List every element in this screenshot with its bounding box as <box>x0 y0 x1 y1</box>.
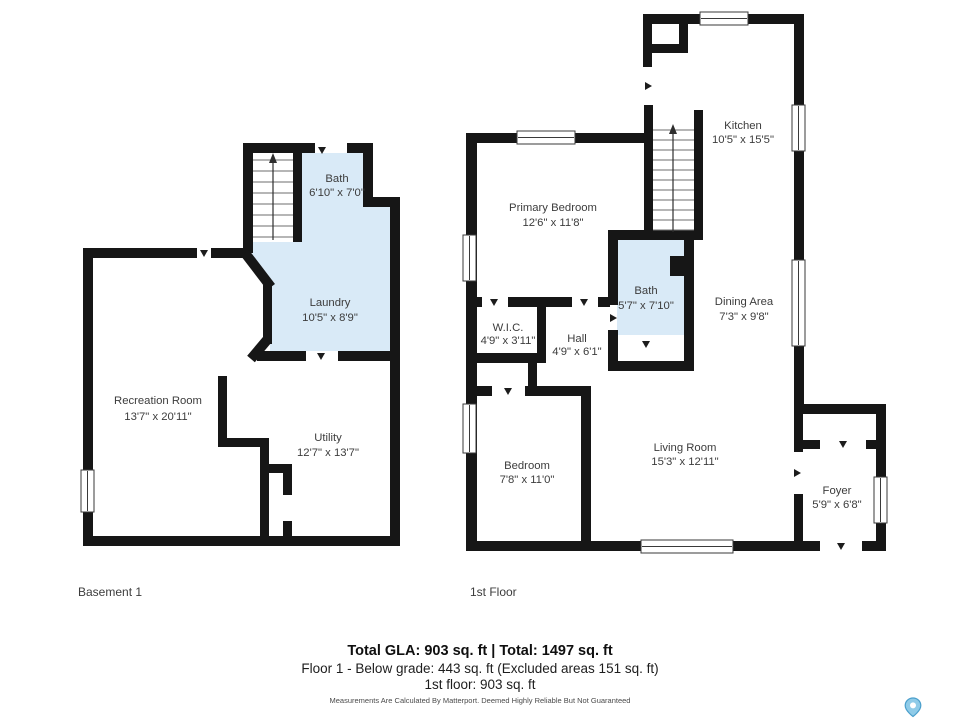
room-label-kitchen: Kitchen 10'5" x 15'5" <box>712 120 774 146</box>
first-floor-plan: Primary Bedroom 12'6" x 11'8" Kitchen 10… <box>463 12 887 599</box>
room-name: Primary Bedroom <box>509 202 597 214</box>
window <box>463 235 476 281</box>
room-name: Recreation Room <box>114 395 202 407</box>
room-label-wic: W.I.C. 4'9" x 3'11" <box>481 322 536 347</box>
room-label-hall: Hall 4'9" x 6'1" <box>552 333 601 358</box>
basement-plan-title: Basement 1 <box>78 585 142 599</box>
room-dims: 6'10" x 7'0" <box>309 187 365 199</box>
first-floor-area-line: 1st floor: 903 sq. ft <box>0 677 960 692</box>
room-dims: 15'3" x 12'11" <box>651 456 718 468</box>
floorplan-canvas: Bath 6'10" x 7'0" Laundry 10'5" x 8'9" R… <box>0 0 960 720</box>
room-dims: 10'5" x 15'5" <box>712 134 774 146</box>
room-label-living-room: Living Room 15'3" x 12'11" <box>651 442 718 468</box>
room-label-dining-area: Dining Area 7'3" x 9'8" <box>715 296 774 323</box>
room-name: Hall <box>567 333 586 345</box>
room-dims: 5'7" x 7'10" <box>618 300 674 312</box>
room-dims: 12'7" x 13'7" <box>297 447 359 459</box>
window <box>463 404 476 453</box>
window <box>700 12 748 25</box>
room-label-recreation-room: Recreation Room 13'7" x 20'11" <box>114 395 202 423</box>
window <box>792 105 805 151</box>
room-name: W.I.C. <box>493 322 524 334</box>
basement-plan: Bath 6'10" x 7'0" Laundry 10'5" x 8'9" R… <box>78 143 400 599</box>
room-name: Bath <box>634 285 657 297</box>
room-dims: 10'5" x 8'9" <box>302 312 358 324</box>
room-label-bedroom: Bedroom 7'8" x 11'0" <box>500 460 555 486</box>
map-pin-icon <box>902 696 924 718</box>
first-floor-stairs <box>653 124 694 232</box>
room-dims: 5'9" x 6'8" <box>812 499 861 511</box>
room-dims: 4'9" x 6'1" <box>552 346 601 358</box>
room-name: Bath <box>325 173 348 185</box>
room-name: Utility <box>314 432 342 444</box>
stairs-up-arrow <box>669 124 677 134</box>
room-name: Bedroom <box>504 460 550 472</box>
window <box>792 260 805 346</box>
room-dims: 7'3" x 9'8" <box>719 311 768 323</box>
first-floor-plan-title: 1st Floor <box>470 585 517 599</box>
room-dims: 13'7" x 20'11" <box>124 411 191 423</box>
room-dims: 7'8" x 11'0" <box>500 474 555 486</box>
floor1-area-line: Floor 1 - Below grade: 443 sq. ft (Exclu… <box>0 661 960 676</box>
window <box>874 477 887 523</box>
room-label-foyer: Foyer 5'9" x 6'8" <box>812 485 861 511</box>
basement-stairs <box>253 153 293 240</box>
room-name: Foyer <box>823 485 852 497</box>
room-label-primary-bedroom: Primary Bedroom 12'6" x 11'8" <box>509 202 597 229</box>
window <box>517 131 575 144</box>
measurement-disclaimer: Measurements Are Calculated By Matterpor… <box>0 696 960 705</box>
room-name: Dining Area <box>715 296 774 308</box>
stairs-up-arrow <box>269 153 277 163</box>
room-name: Laundry <box>310 297 351 309</box>
window <box>641 540 733 553</box>
room-dims: 4'9" x 3'11" <box>481 335 536 347</box>
room-name: Kitchen <box>724 120 762 132</box>
window <box>81 470 94 512</box>
basement-windows <box>81 470 94 512</box>
room-label-utility: Utility 12'7" x 13'7" <box>297 432 359 459</box>
total-gla-line: Total GLA: 903 sq. ft | Total: 1497 sq. … <box>0 643 960 659</box>
room-name: Living Room <box>654 442 717 454</box>
room-dims: 12'6" x 11'8" <box>522 217 583 229</box>
